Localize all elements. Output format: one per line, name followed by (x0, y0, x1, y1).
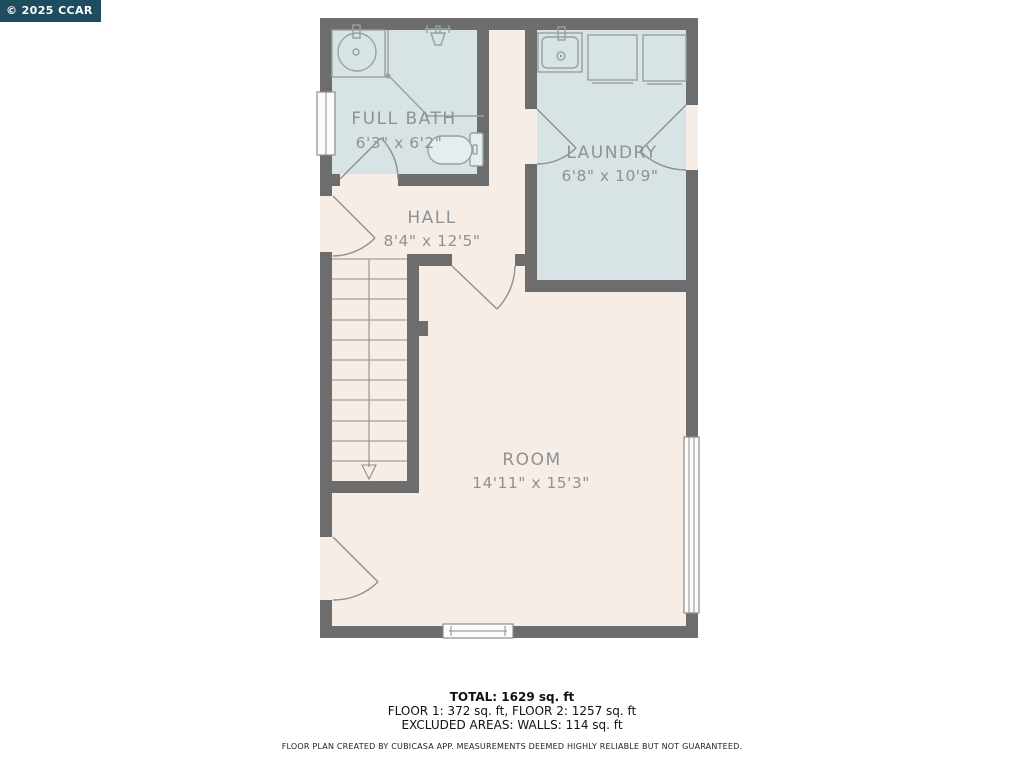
room-bottom-window (443, 624, 513, 638)
room-dims-hall: 8'4" x 12'5" (383, 232, 480, 250)
bath-window (317, 92, 335, 155)
room-label-full-bath: FULL BATH (351, 109, 456, 129)
room-dims-laundry: 6'8" x 10'9" (561, 167, 658, 185)
floor-plan-page: © 2025 CCAR (0, 0, 1024, 768)
floor-plan: FULL BATH 6'3" x 6'2" LAUNDRY 6'8" x 10'… (0, 0, 1024, 768)
room-label-laundry: LAUNDRY (566, 143, 657, 163)
room-dims-full-bath: 6'3" x 6'2" (356, 134, 443, 152)
room-label-hall: HALL (407, 208, 456, 228)
room-label-room: ROOM (502, 450, 561, 470)
disclaimer-text: FLOOR PLAN CREATED BY CUBICASA APP. MEAS… (0, 742, 1024, 752)
floor-areas-text: FLOOR 1: 372 sq. ft, FLOOR 2: 1257 sq. f… (0, 704, 1024, 718)
total-area-text: TOTAL: 1629 sq. ft (0, 690, 1024, 704)
room-dims-room: 14'11" x 15'3" (472, 474, 590, 492)
excluded-areas-text: EXCLUDED AREAS: WALLS: 114 sq. ft (0, 718, 1024, 732)
area-summary: TOTAL: 1629 sq. ft FLOOR 1: 372 sq. ft, … (0, 690, 1024, 752)
room-side-window (684, 437, 699, 613)
